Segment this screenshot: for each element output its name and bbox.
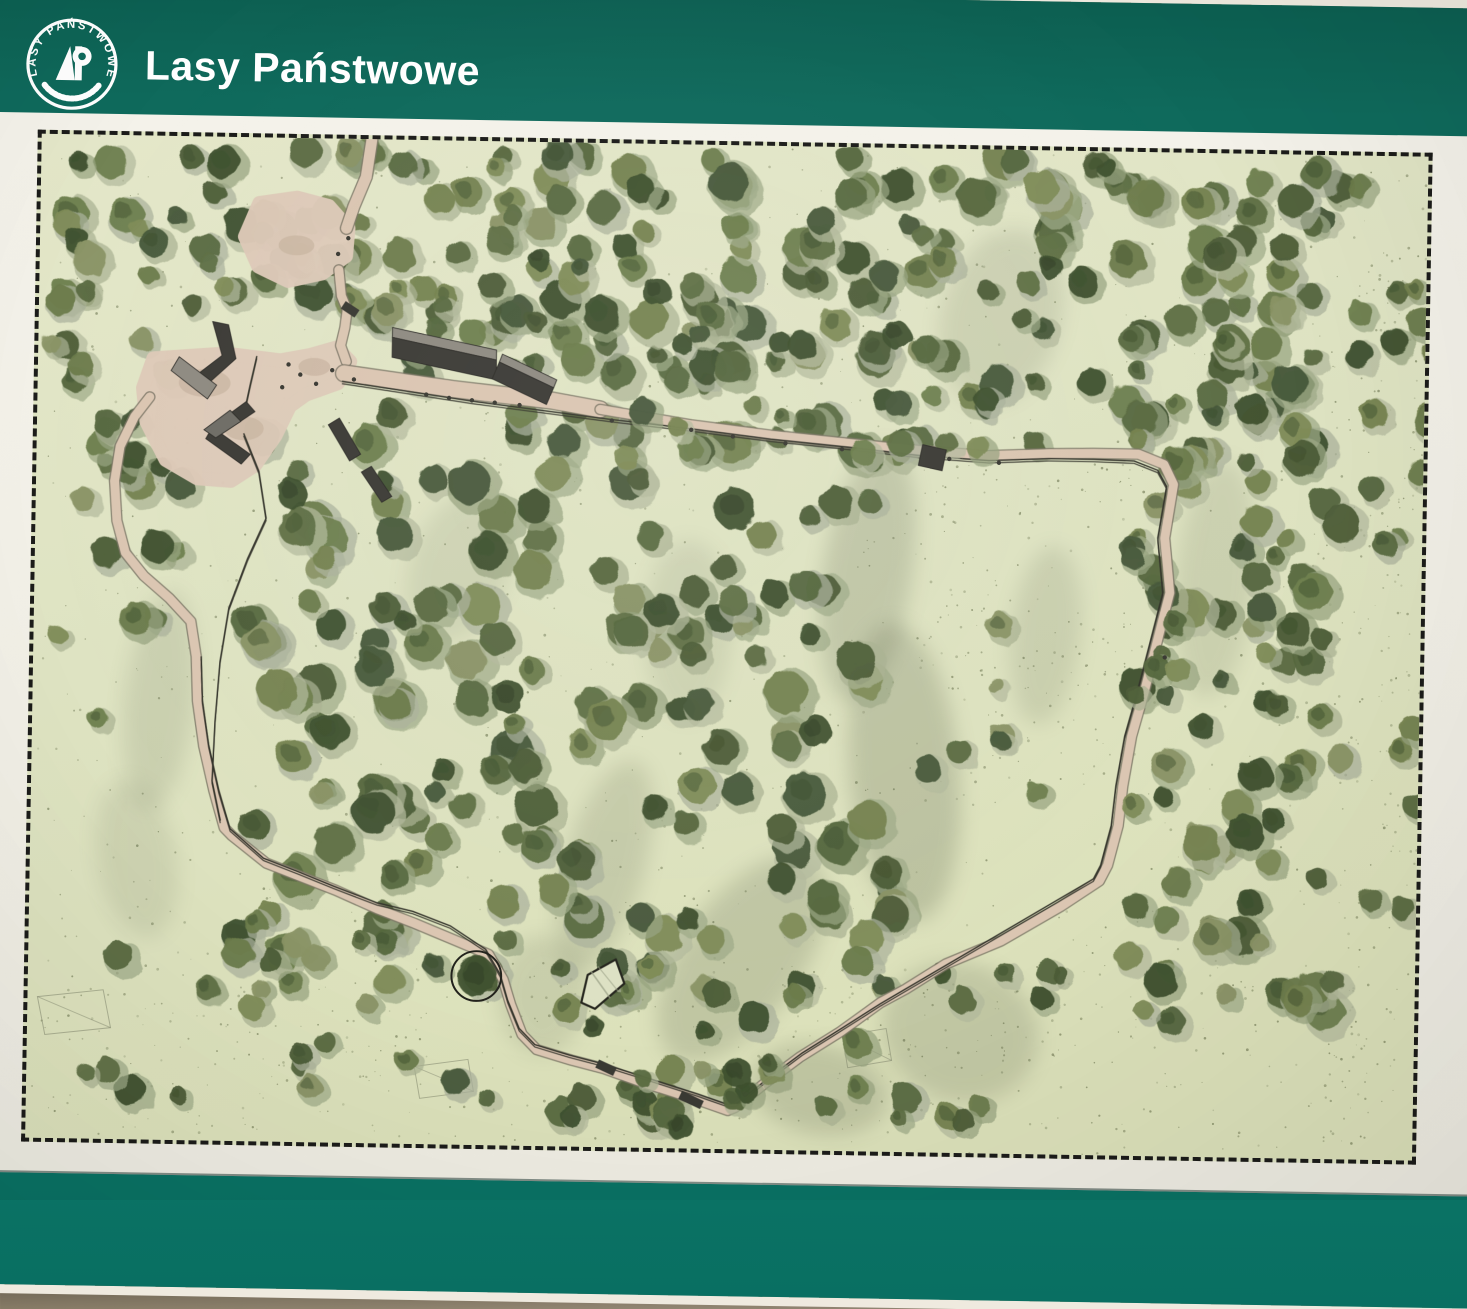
poster-paper xyxy=(0,111,1467,1197)
lasy-panstwowe-logo: LASY PAŃSTWOWE xyxy=(24,16,120,112)
logo-wreath-icon xyxy=(44,85,98,99)
poster-header: LASY PAŃSTWOWE Lasy Państwowe xyxy=(24,16,481,118)
site-plan-canvas xyxy=(25,134,1428,1161)
logo-emblem-icon xyxy=(56,46,92,81)
poster-board: LASY PAŃSTWOWE Lasy Państwowe xyxy=(0,0,1467,1309)
site-plan-map xyxy=(21,130,1433,1165)
photo-of-forest-site-plan-poster: { "scene": { "wall_color": "#b7a88f", "b… xyxy=(0,0,1467,1200)
poster-title: Lasy Państwowe xyxy=(145,42,481,95)
